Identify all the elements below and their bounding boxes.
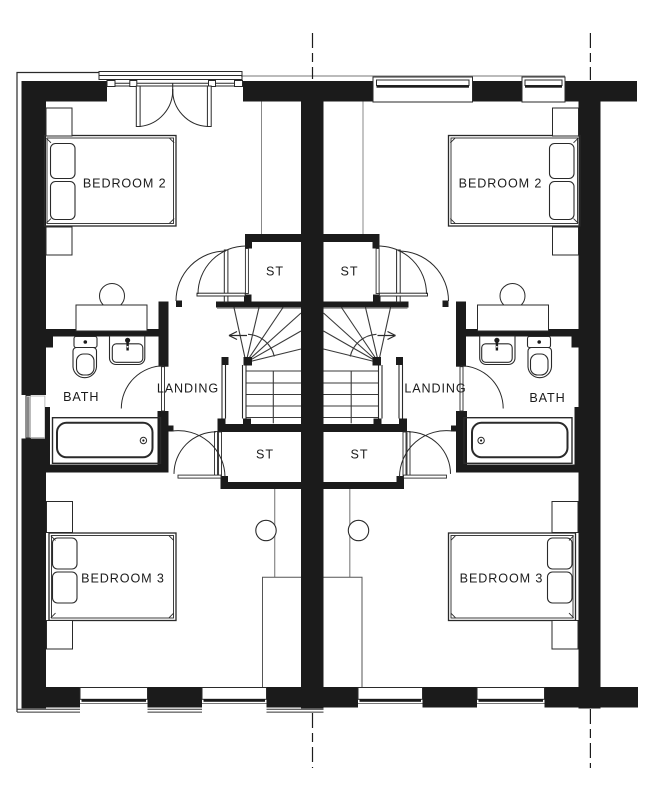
svg-text:ST: ST	[256, 448, 274, 462]
svg-text:ST: ST	[351, 448, 369, 462]
svg-text:LANDING: LANDING	[404, 382, 466, 396]
svg-text:BATH: BATH	[63, 390, 99, 404]
svg-text:BEDROOM 3: BEDROOM 3	[460, 572, 544, 586]
svg-text:BEDROOM 3: BEDROOM 3	[81, 572, 165, 586]
svg-text:BATH: BATH	[529, 391, 565, 405]
svg-text:ST: ST	[266, 265, 284, 279]
svg-text:BEDROOM 2: BEDROOM 2	[459, 177, 543, 191]
svg-text:ST: ST	[341, 265, 359, 279]
svg-text:BEDROOM 2: BEDROOM 2	[83, 177, 167, 191]
svg-text:LANDING: LANDING	[157, 382, 219, 396]
